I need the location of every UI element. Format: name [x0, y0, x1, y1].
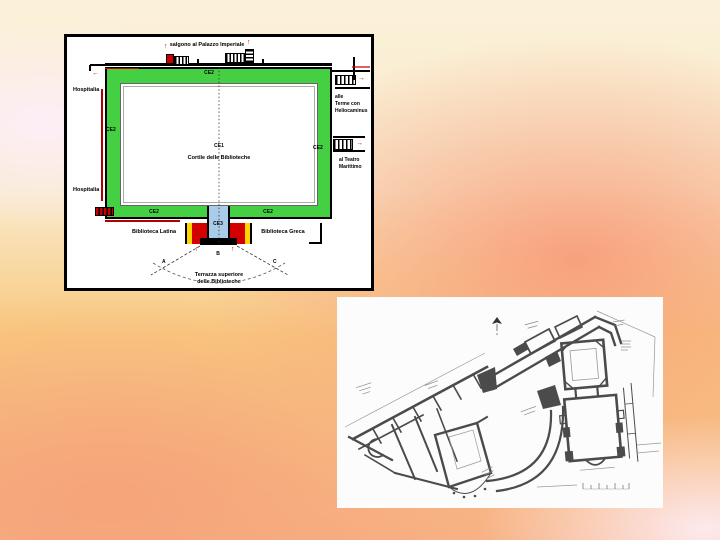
- terrazza-label-line1: Terrazza superiore: [195, 272, 244, 279]
- scale-bar: [583, 483, 629, 489]
- stair-structure-right: [225, 53, 245, 63]
- solid-wall-patches: [453, 342, 561, 498]
- outer-wall-top: [105, 63, 332, 66]
- ce1-label: CE1: [214, 143, 224, 149]
- red-wall-line-left: [101, 89, 103, 201]
- biblioteca-latina-label: Biblioteca Latina: [132, 229, 176, 236]
- red-arrow-up-icon: ↑: [247, 39, 251, 46]
- ce2-right-label: CE2: [313, 145, 323, 151]
- cortile-label: Cortile delle Biblioteche: [188, 155, 251, 162]
- teatro-label-line1: al Teatro: [339, 157, 359, 163]
- ce2-top-label: CE2: [204, 70, 214, 76]
- stair-block-red: [166, 54, 174, 64]
- red-arrow-right-icon: →: [358, 75, 365, 82]
- red-arrow-up-icon: ↑: [195, 246, 199, 253]
- teatro-label-line2: Marittimo: [339, 164, 362, 170]
- hospitalia-upper-label: Hospitalia: [73, 87, 99, 94]
- ce2-left-label: CE2: [106, 127, 116, 133]
- north-arrow-icon: [492, 317, 502, 335]
- red-arrow-up-icon: ↑: [164, 43, 168, 50]
- presentation-slide: ↑ ↑ salgono al Palazzo Imperiale CE2 Hos…: [0, 0, 720, 540]
- hospitalia-lower-label: Hospitalia: [73, 187, 99, 194]
- point-b-label: B: [216, 251, 220, 257]
- point-a-label: A: [162, 259, 166, 265]
- terme-label-line2: Terme con: [335, 101, 360, 107]
- right-building: [553, 338, 638, 472]
- terme-label-line3: Heliocaminus: [335, 108, 368, 114]
- point-c-label: C: [273, 259, 277, 265]
- ce2-bottom-right-label: CE2: [263, 209, 273, 215]
- dashed-diagonal-left: [151, 246, 200, 275]
- dashed-diagonal-right: [237, 246, 288, 275]
- biblioteca-greca-label: Biblioteca Greca: [261, 229, 304, 236]
- terrazza-label-line2: delle Biblioteche: [197, 279, 241, 286]
- corridor-wall: [335, 87, 370, 89]
- corridor-wall: [333, 150, 365, 152]
- passage-steps: [335, 75, 356, 85]
- corridor-wall: [332, 70, 370, 72]
- stair-tower: [245, 49, 254, 63]
- floor-plan-drawing: [337, 297, 663, 508]
- biblioteche-plan-image: ↑ ↑ salgono al Palazzo Imperiale CE2 Hos…: [64, 34, 374, 291]
- floor-plan-image: [337, 297, 663, 508]
- wall-tick: [197, 59, 199, 64]
- wall-tick: [262, 59, 264, 64]
- red-wall-line-bottom: [105, 220, 180, 222]
- red-arrow-up-icon: ↑: [231, 246, 235, 253]
- terme-label-line1: alle: [335, 94, 343, 100]
- red-arrow-right-icon: →: [356, 140, 363, 147]
- entrance-structure-left-bottom: [95, 207, 114, 216]
- top-exit-label: salgono al Palazzo Imperiale: [170, 42, 245, 49]
- passage-steps: [333, 139, 353, 150]
- corridor-wall: [333, 136, 365, 138]
- terrace-wall: [200, 238, 237, 245]
- ce2-bottom-left-label: CE2: [149, 209, 159, 215]
- stair-structure-left: [174, 56, 189, 65]
- red-arrow-left-icon: ←: [92, 70, 99, 77]
- ce3-label: CE3: [213, 221, 223, 227]
